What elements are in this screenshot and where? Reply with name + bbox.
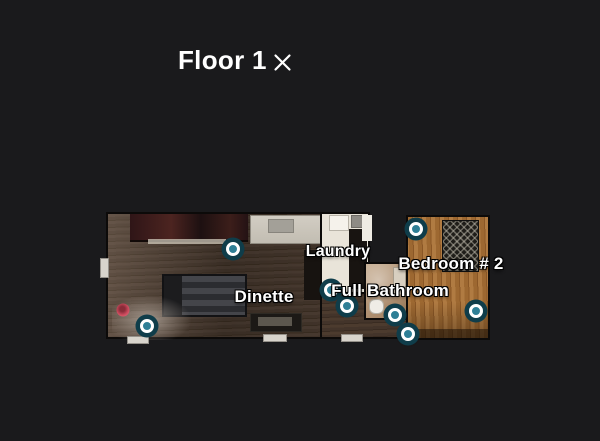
toilet bbox=[369, 299, 384, 314]
floor-light-spot bbox=[112, 295, 192, 340]
waypoint-marker[interactable] bbox=[409, 222, 423, 236]
room-label-laundry: Laundry bbox=[306, 243, 371, 261]
washer-appliance bbox=[329, 215, 349, 231]
cabinet-edge bbox=[148, 239, 226, 244]
waypoint-marker[interactable] bbox=[140, 319, 154, 333]
kitchen-sink bbox=[268, 219, 294, 233]
laundry-door bbox=[362, 215, 372, 241]
dinette-table-top bbox=[258, 317, 292, 326]
waypoint-marker[interactable] bbox=[388, 308, 402, 322]
waypoint-marker[interactable] bbox=[469, 304, 483, 318]
door-threshold bbox=[341, 334, 363, 342]
floorplan-view: Floor 1 LaundryBedroom # 2DinetteFull Ba… bbox=[0, 0, 600, 441]
room-label-bedroom-2: Bedroom # 2 bbox=[398, 254, 503, 274]
door-threshold bbox=[263, 334, 287, 342]
door-threshold bbox=[127, 336, 149, 344]
bedroom-shadow bbox=[408, 329, 488, 338]
waypoint-marker[interactable] bbox=[401, 327, 415, 341]
room-label-full-bathroom: Full Bathroom bbox=[331, 281, 449, 301]
kitchen-cabinets bbox=[130, 214, 248, 242]
waypoint-marker[interactable] bbox=[226, 242, 240, 256]
waypoint-marker[interactable] bbox=[340, 299, 354, 313]
room-label-dinette: Dinette bbox=[234, 287, 293, 307]
camera-position-marker[interactable] bbox=[117, 304, 130, 317]
x-cross-icon bbox=[272, 52, 293, 73]
close-button[interactable] bbox=[270, 50, 294, 74]
floor-title: Floor 1 bbox=[178, 45, 267, 76]
window-sill bbox=[100, 258, 109, 278]
